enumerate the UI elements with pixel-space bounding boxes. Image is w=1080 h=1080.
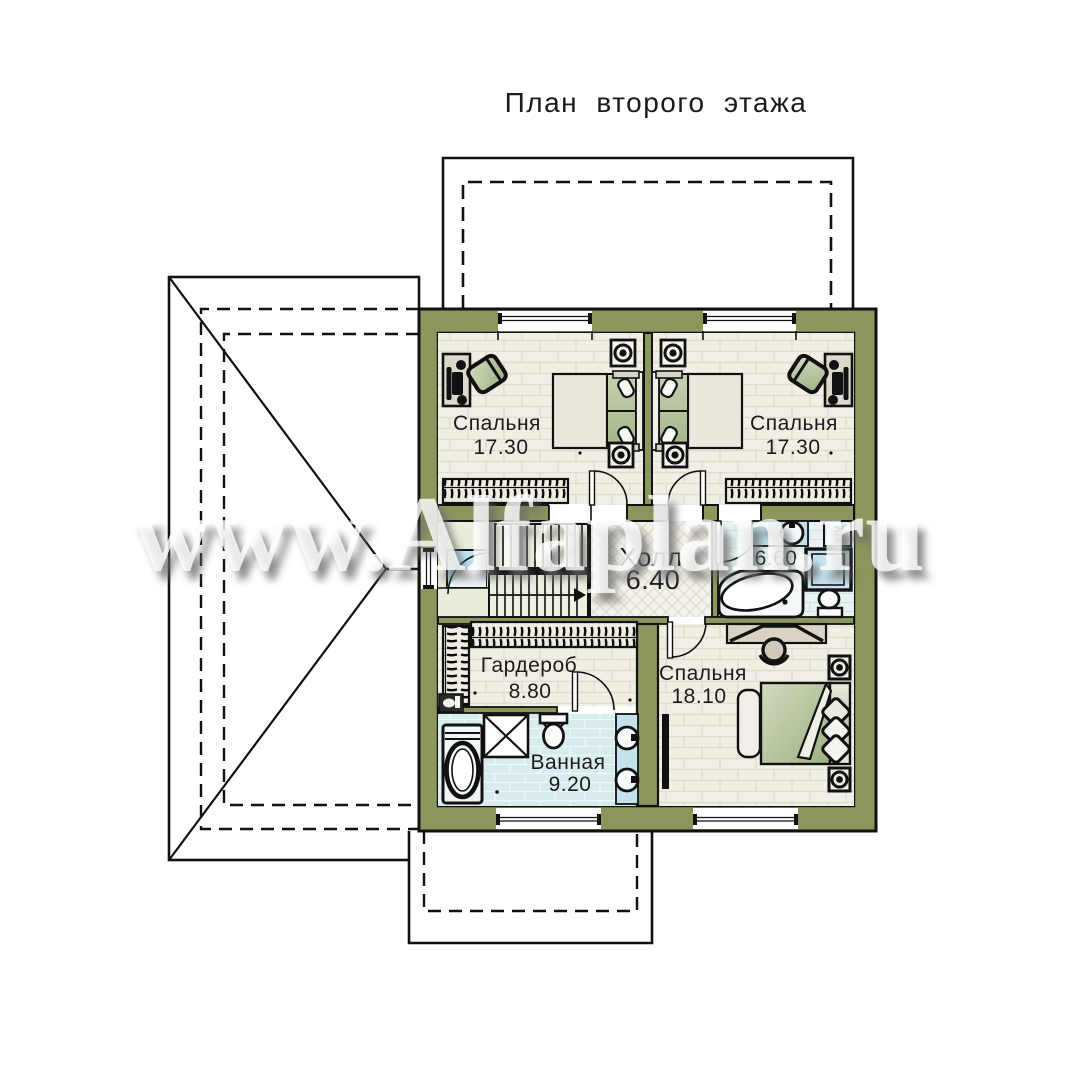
svg-text:Спальня: Спальня: [659, 662, 747, 685]
svg-text:Спальня: Спальня: [750, 412, 838, 435]
svg-text:Спальня: Спальня: [453, 412, 541, 435]
svg-text:8.80: 8.80: [509, 680, 552, 703]
svg-text:18.10: 18.10: [671, 685, 726, 708]
svg-text:17.30: 17.30: [765, 436, 820, 459]
svg-text:Гардероб: Гардероб: [481, 654, 577, 677]
svg-text:9.20: 9.20: [549, 773, 592, 796]
svg-text:17.30: 17.30: [473, 436, 528, 459]
svg-text:План второго этажа: План второго этажа: [505, 87, 808, 118]
svg-text:Ванная: Ванная: [531, 751, 606, 774]
